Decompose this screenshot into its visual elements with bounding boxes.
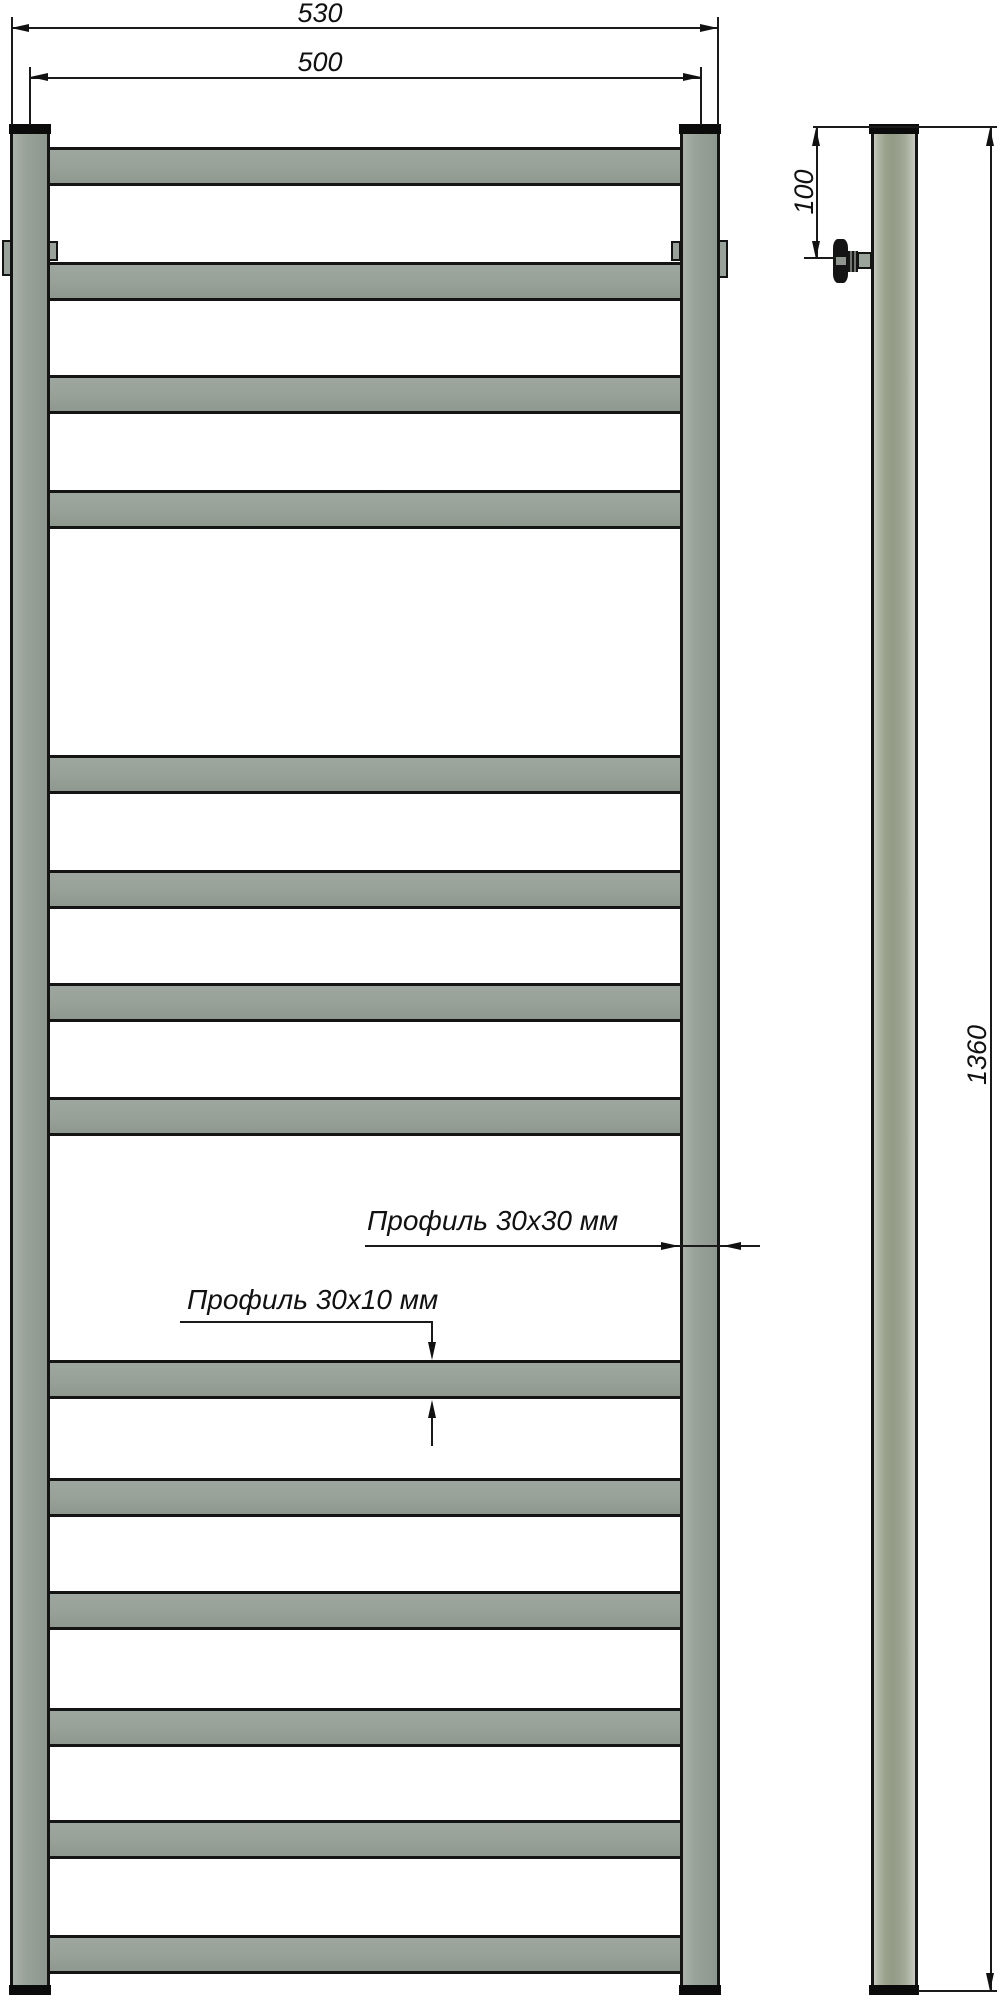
right-rail-top-cap — [679, 124, 721, 134]
dim-530-arrow-right — [700, 24, 718, 32]
rail-profile-label: Профиль 30х30 мм — [367, 1205, 618, 1237]
rung — [47, 147, 683, 186]
front-right-rail — [680, 125, 720, 1995]
rung — [47, 1591, 683, 1630]
rung — [47, 1360, 683, 1399]
valve-flange-highlight — [836, 257, 846, 265]
left-rail-bottom-cap — [9, 1985, 51, 1995]
rung-profile-label: Профиль 30х10 мм — [187, 1284, 438, 1316]
dim-500-line — [30, 77, 701, 79]
rung — [47, 375, 683, 414]
rung-profile-vline-bottom — [431, 1416, 433, 1446]
valve-union-nut — [857, 252, 872, 269]
left-rail-top-cap — [9, 124, 51, 134]
dim-530-line — [11, 27, 719, 29]
dim-100-arrow-bottom — [812, 241, 820, 259]
dim-1360-arrow-top — [986, 128, 994, 146]
rung — [47, 1935, 683, 1974]
rung — [47, 983, 683, 1022]
rail-profile-arrow-right — [723, 1242, 741, 1250]
dim-500-text: 500 — [250, 49, 390, 76]
front-left-rail — [10, 125, 50, 1995]
dim-530-arrow-left — [11, 24, 29, 32]
side-view-bar — [871, 125, 918, 1995]
rung — [47, 1820, 683, 1859]
dim-100-text: 100 — [772, 160, 836, 224]
rung-profile-arrow-down — [428, 1342, 436, 1360]
dim-500-arrow-right — [683, 73, 701, 81]
rung — [47, 1708, 683, 1747]
right-rail-bottom-cap — [679, 1985, 721, 1995]
dim-1360-text: 1360 — [940, 1018, 1000, 1092]
rung — [47, 490, 683, 529]
dim-530-text: 530 — [250, 0, 390, 27]
rung — [47, 262, 683, 301]
rung-profile-arrow-up — [428, 1400, 436, 1418]
dim-100-arrow-top — [812, 128, 820, 146]
side-bar-bottom-cap — [869, 1985, 919, 1995]
dim-530-ext-left — [11, 17, 13, 125]
rung — [47, 1478, 683, 1517]
dim-500-arrow-left — [30, 73, 48, 81]
rung-profile-leader-line — [180, 1321, 433, 1323]
drawing-canvas: 530 500 100 1360 Профиль 30х30 мм Профил… — [0, 0, 1000, 2000]
side-top-extension-line — [813, 126, 997, 128]
rail-profile-dim-line — [365, 1245, 760, 1247]
rail-profile-arrow-left — [661, 1242, 679, 1250]
rung — [47, 755, 683, 794]
dim-100-ext-bottom — [804, 257, 836, 259]
dim-1360-arrow-bottom — [986, 1973, 994, 1991]
dim-530-ext-right — [717, 17, 719, 125]
rung — [47, 1097, 683, 1136]
rung — [47, 870, 683, 909]
